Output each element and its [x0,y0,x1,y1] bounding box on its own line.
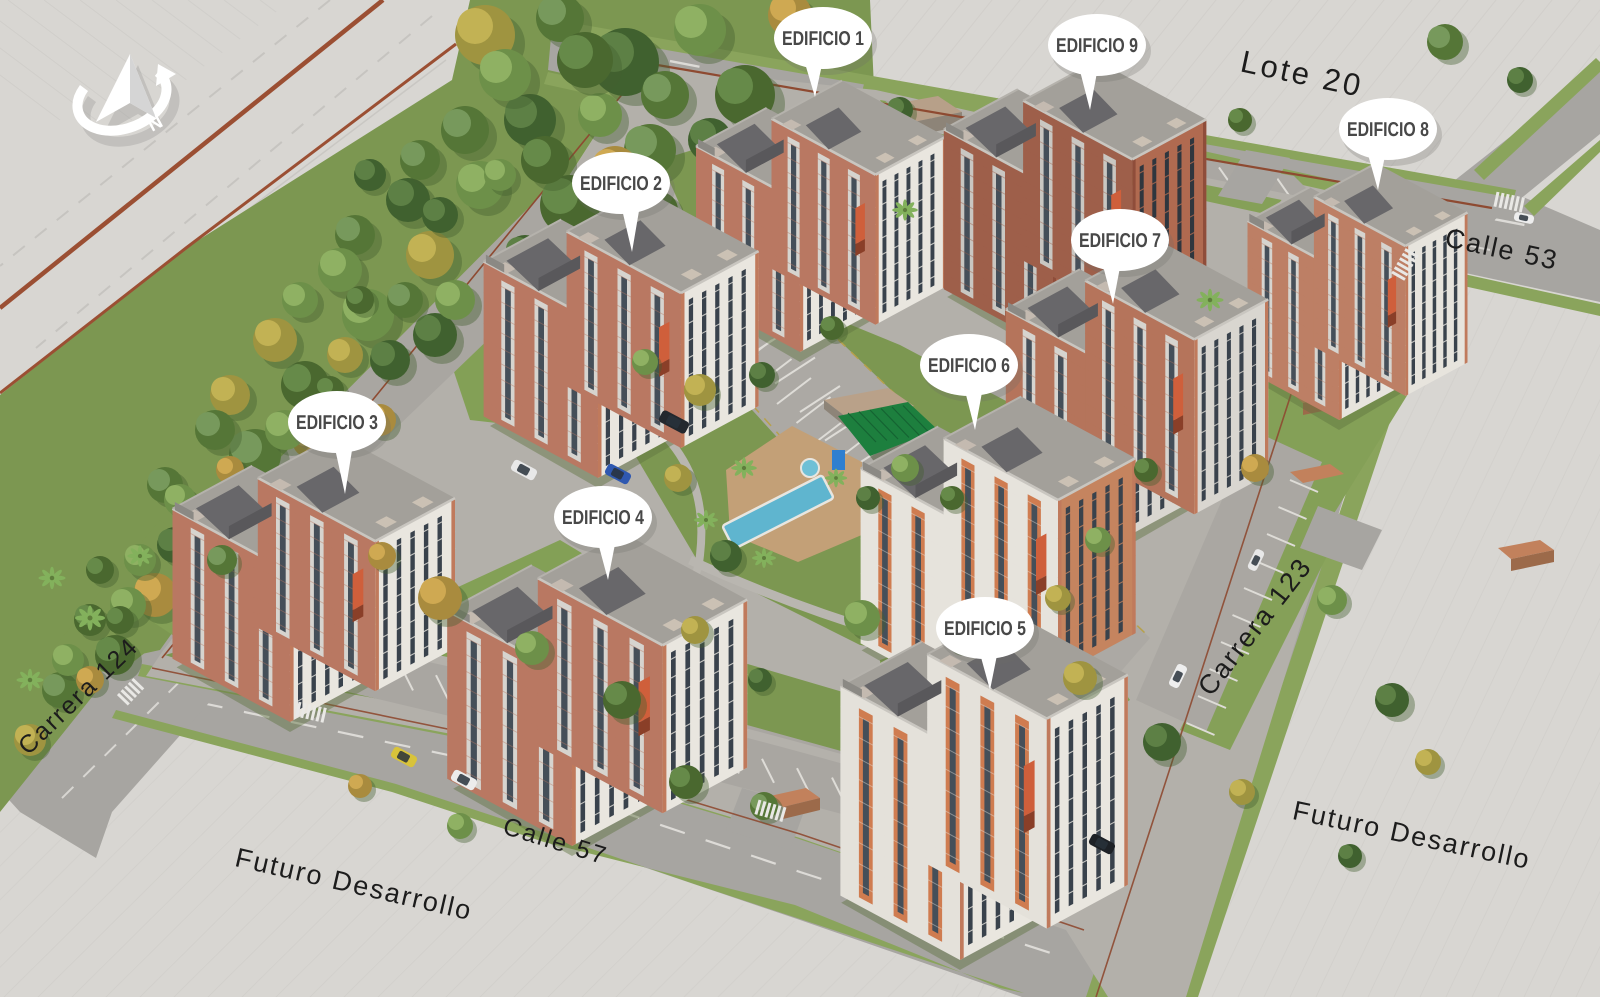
svg-text:EDIFICIO 4: EDIFICIO 4 [562,507,645,529]
svg-text:EDIFICIO 6: EDIFICIO 6 [928,355,1010,377]
svg-text:EDIFICIO 9: EDIFICIO 9 [1056,35,1138,57]
svg-text:EDIFICIO 7: EDIFICIO 7 [1079,230,1161,252]
svg-text:EDIFICIO 8: EDIFICIO 8 [1347,119,1429,141]
svg-text:EDIFICIO 3: EDIFICIO 3 [296,412,378,434]
svg-text:EDIFICIO 5: EDIFICIO 5 [944,618,1026,640]
svg-text:EDIFICIO 2: EDIFICIO 2 [580,173,662,195]
svg-text:EDIFICIO 1: EDIFICIO 1 [782,28,864,50]
